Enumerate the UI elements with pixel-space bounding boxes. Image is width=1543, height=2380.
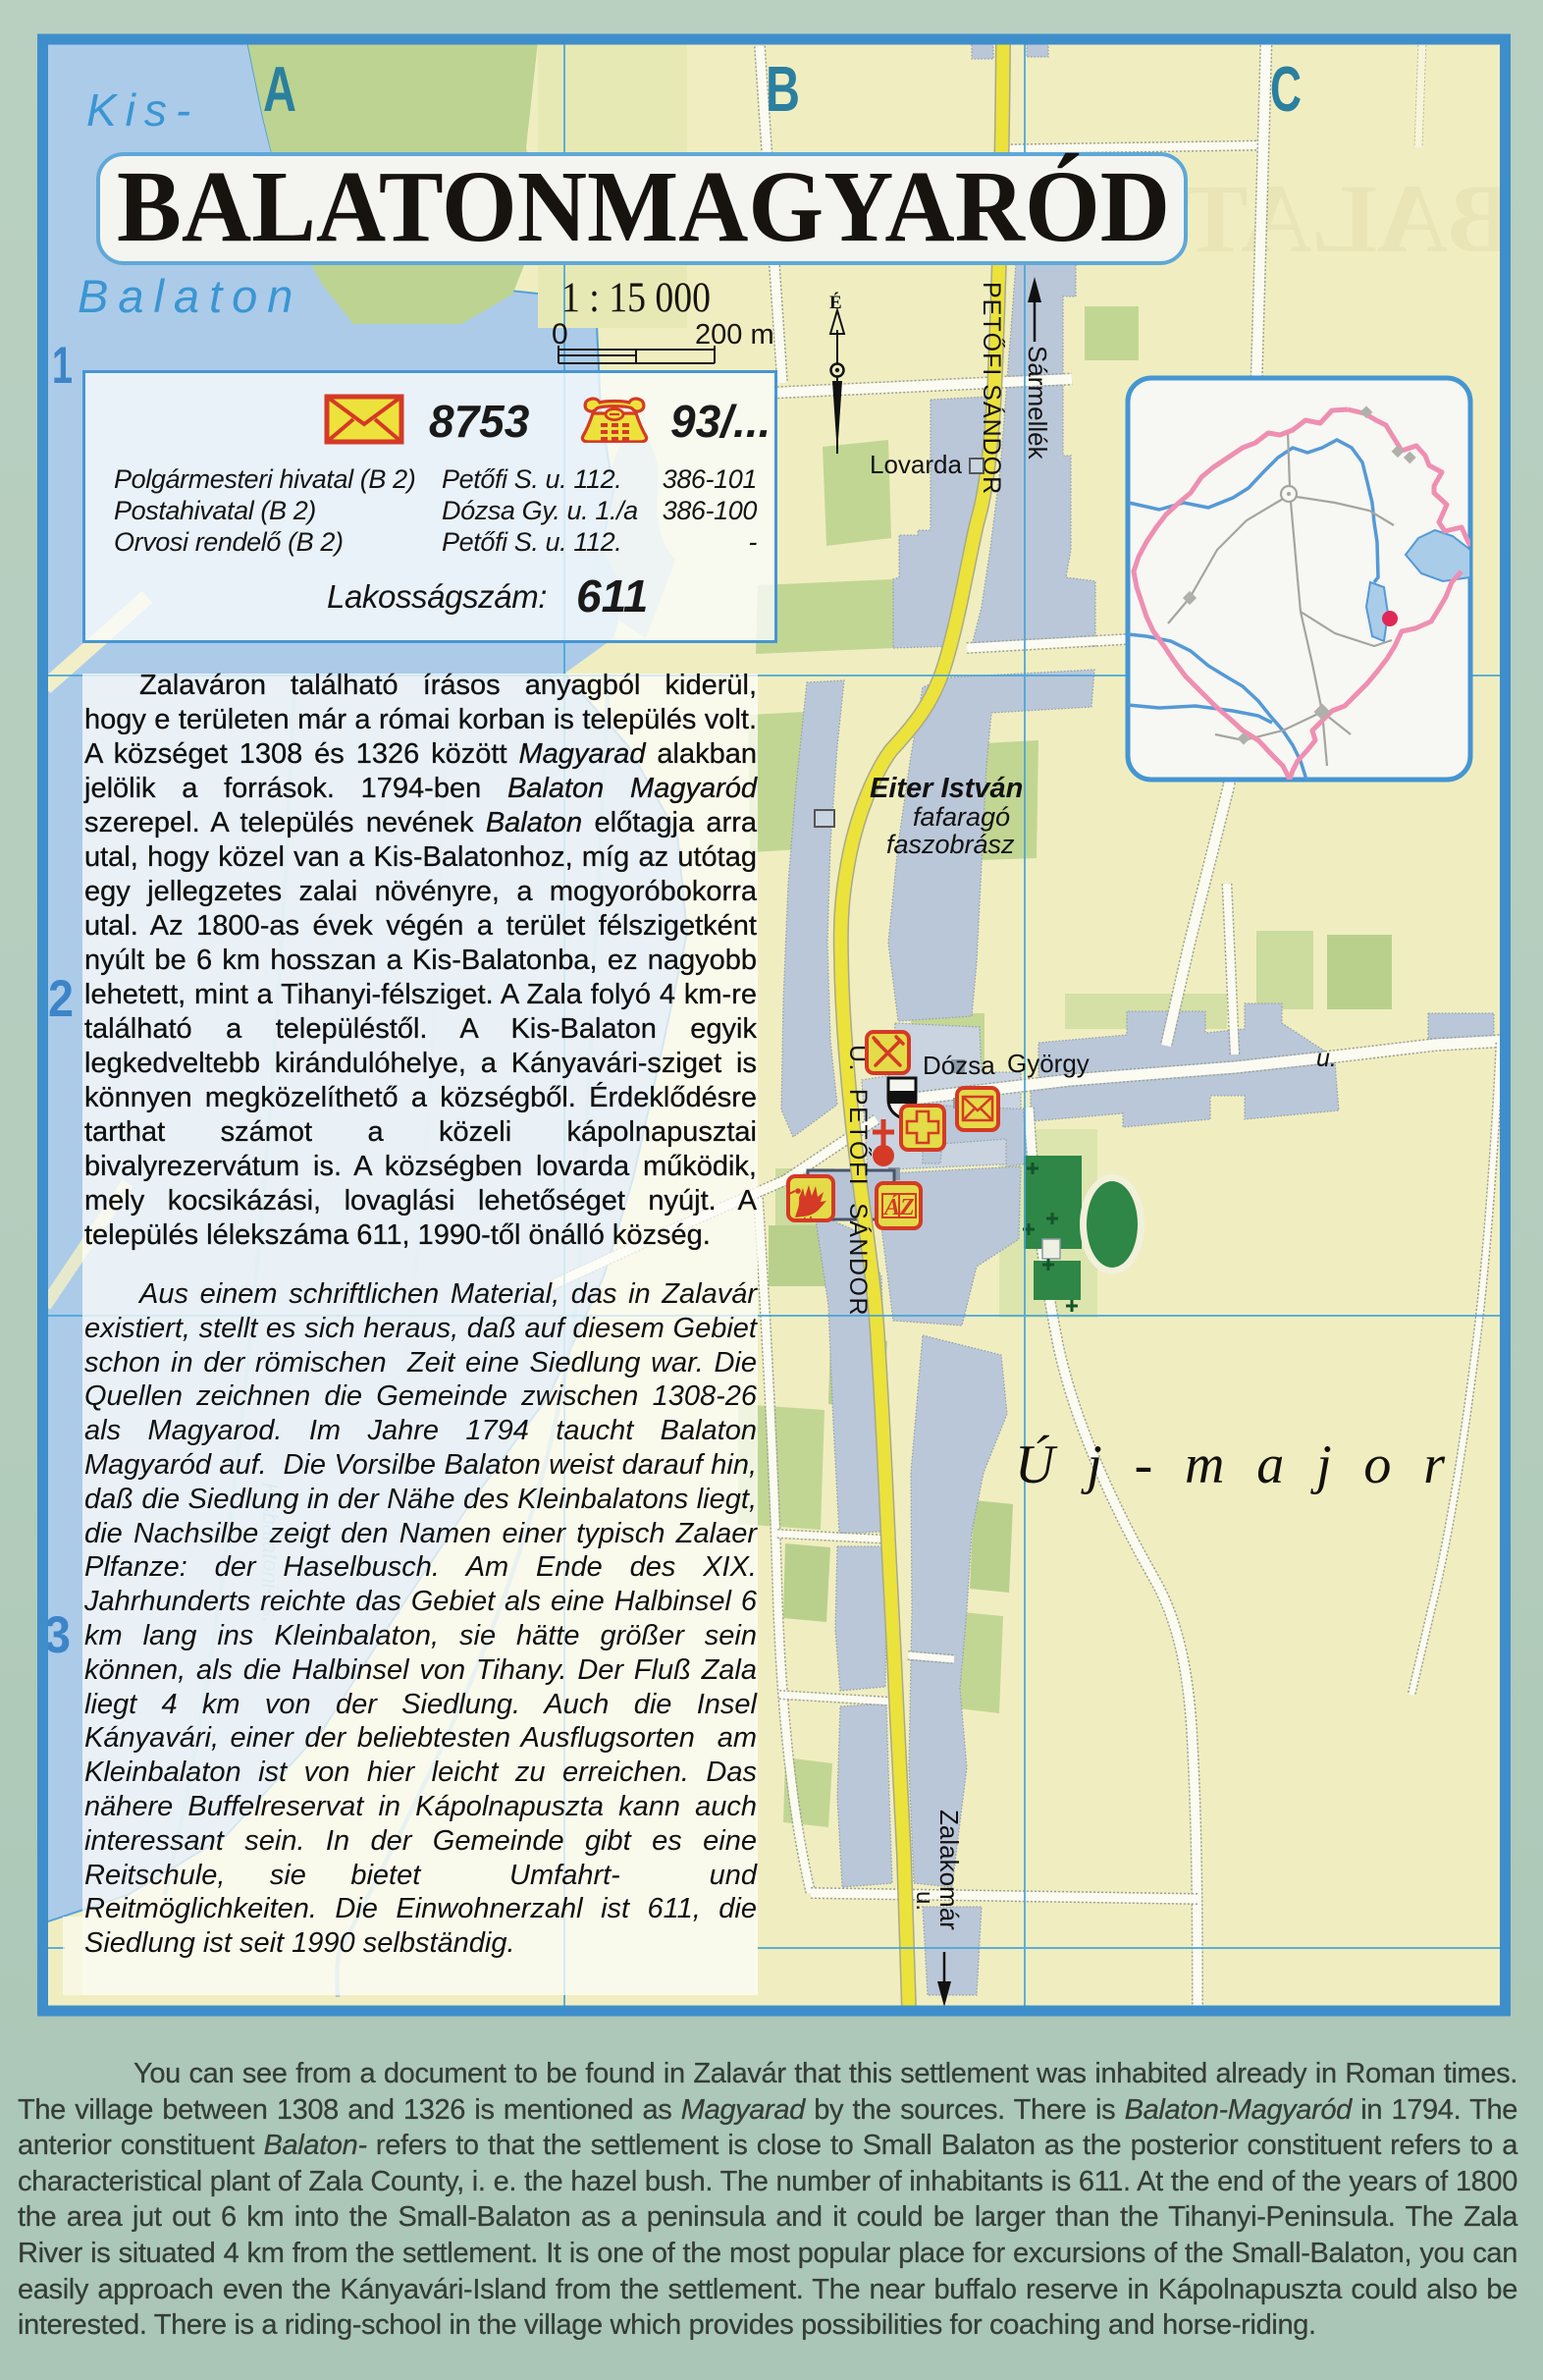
- svg-text:É: É: [829, 292, 842, 313]
- svg-text:A: A: [263, 53, 296, 125]
- svg-text:3: 3: [44, 1606, 71, 1664]
- svg-text:1 : 15 000: 1 : 15 000: [561, 275, 711, 321]
- svg-text:fafaragó: fafaragó: [913, 802, 1010, 832]
- svg-text:Dózsa: Dózsa: [923, 1051, 995, 1080]
- svg-text:Kis-: Kis-: [86, 84, 199, 135]
- svg-text:C: C: [1270, 53, 1302, 125]
- svg-text:Sármellék: Sármellék: [1023, 346, 1052, 460]
- svg-text:B: B: [766, 53, 800, 125]
- svg-text:Eiter István: Eiter István: [870, 773, 1023, 804]
- svg-text:faszobrász: faszobrász: [886, 830, 1015, 859]
- svg-text:György: György: [1007, 1049, 1090, 1078]
- svg-text:Lovarda: Lovarda: [870, 450, 962, 479]
- svg-text:u.: u.: [911, 1891, 937, 1911]
- svg-text:BALATONMAGYARÓD: BALATONMAGYARÓD: [117, 150, 1170, 263]
- svg-text:200 m: 200 m: [695, 319, 774, 351]
- svg-text:Zalakomár: Zalakomár: [934, 1810, 964, 1930]
- svg-text:Balaton: Balaton: [78, 270, 302, 322]
- svg-text:0: 0: [552, 318, 568, 351]
- svg-text:2: 2: [48, 970, 74, 1028]
- svg-text:u.: u.: [1316, 1045, 1337, 1072]
- svg-text:ÁZ: ÁZ: [882, 1195, 915, 1220]
- svg-text:1: 1: [52, 337, 73, 395]
- svg-text:U. PETŐFI SÁNDOR: U. PETŐFI SÁNDOR: [844, 1045, 873, 1317]
